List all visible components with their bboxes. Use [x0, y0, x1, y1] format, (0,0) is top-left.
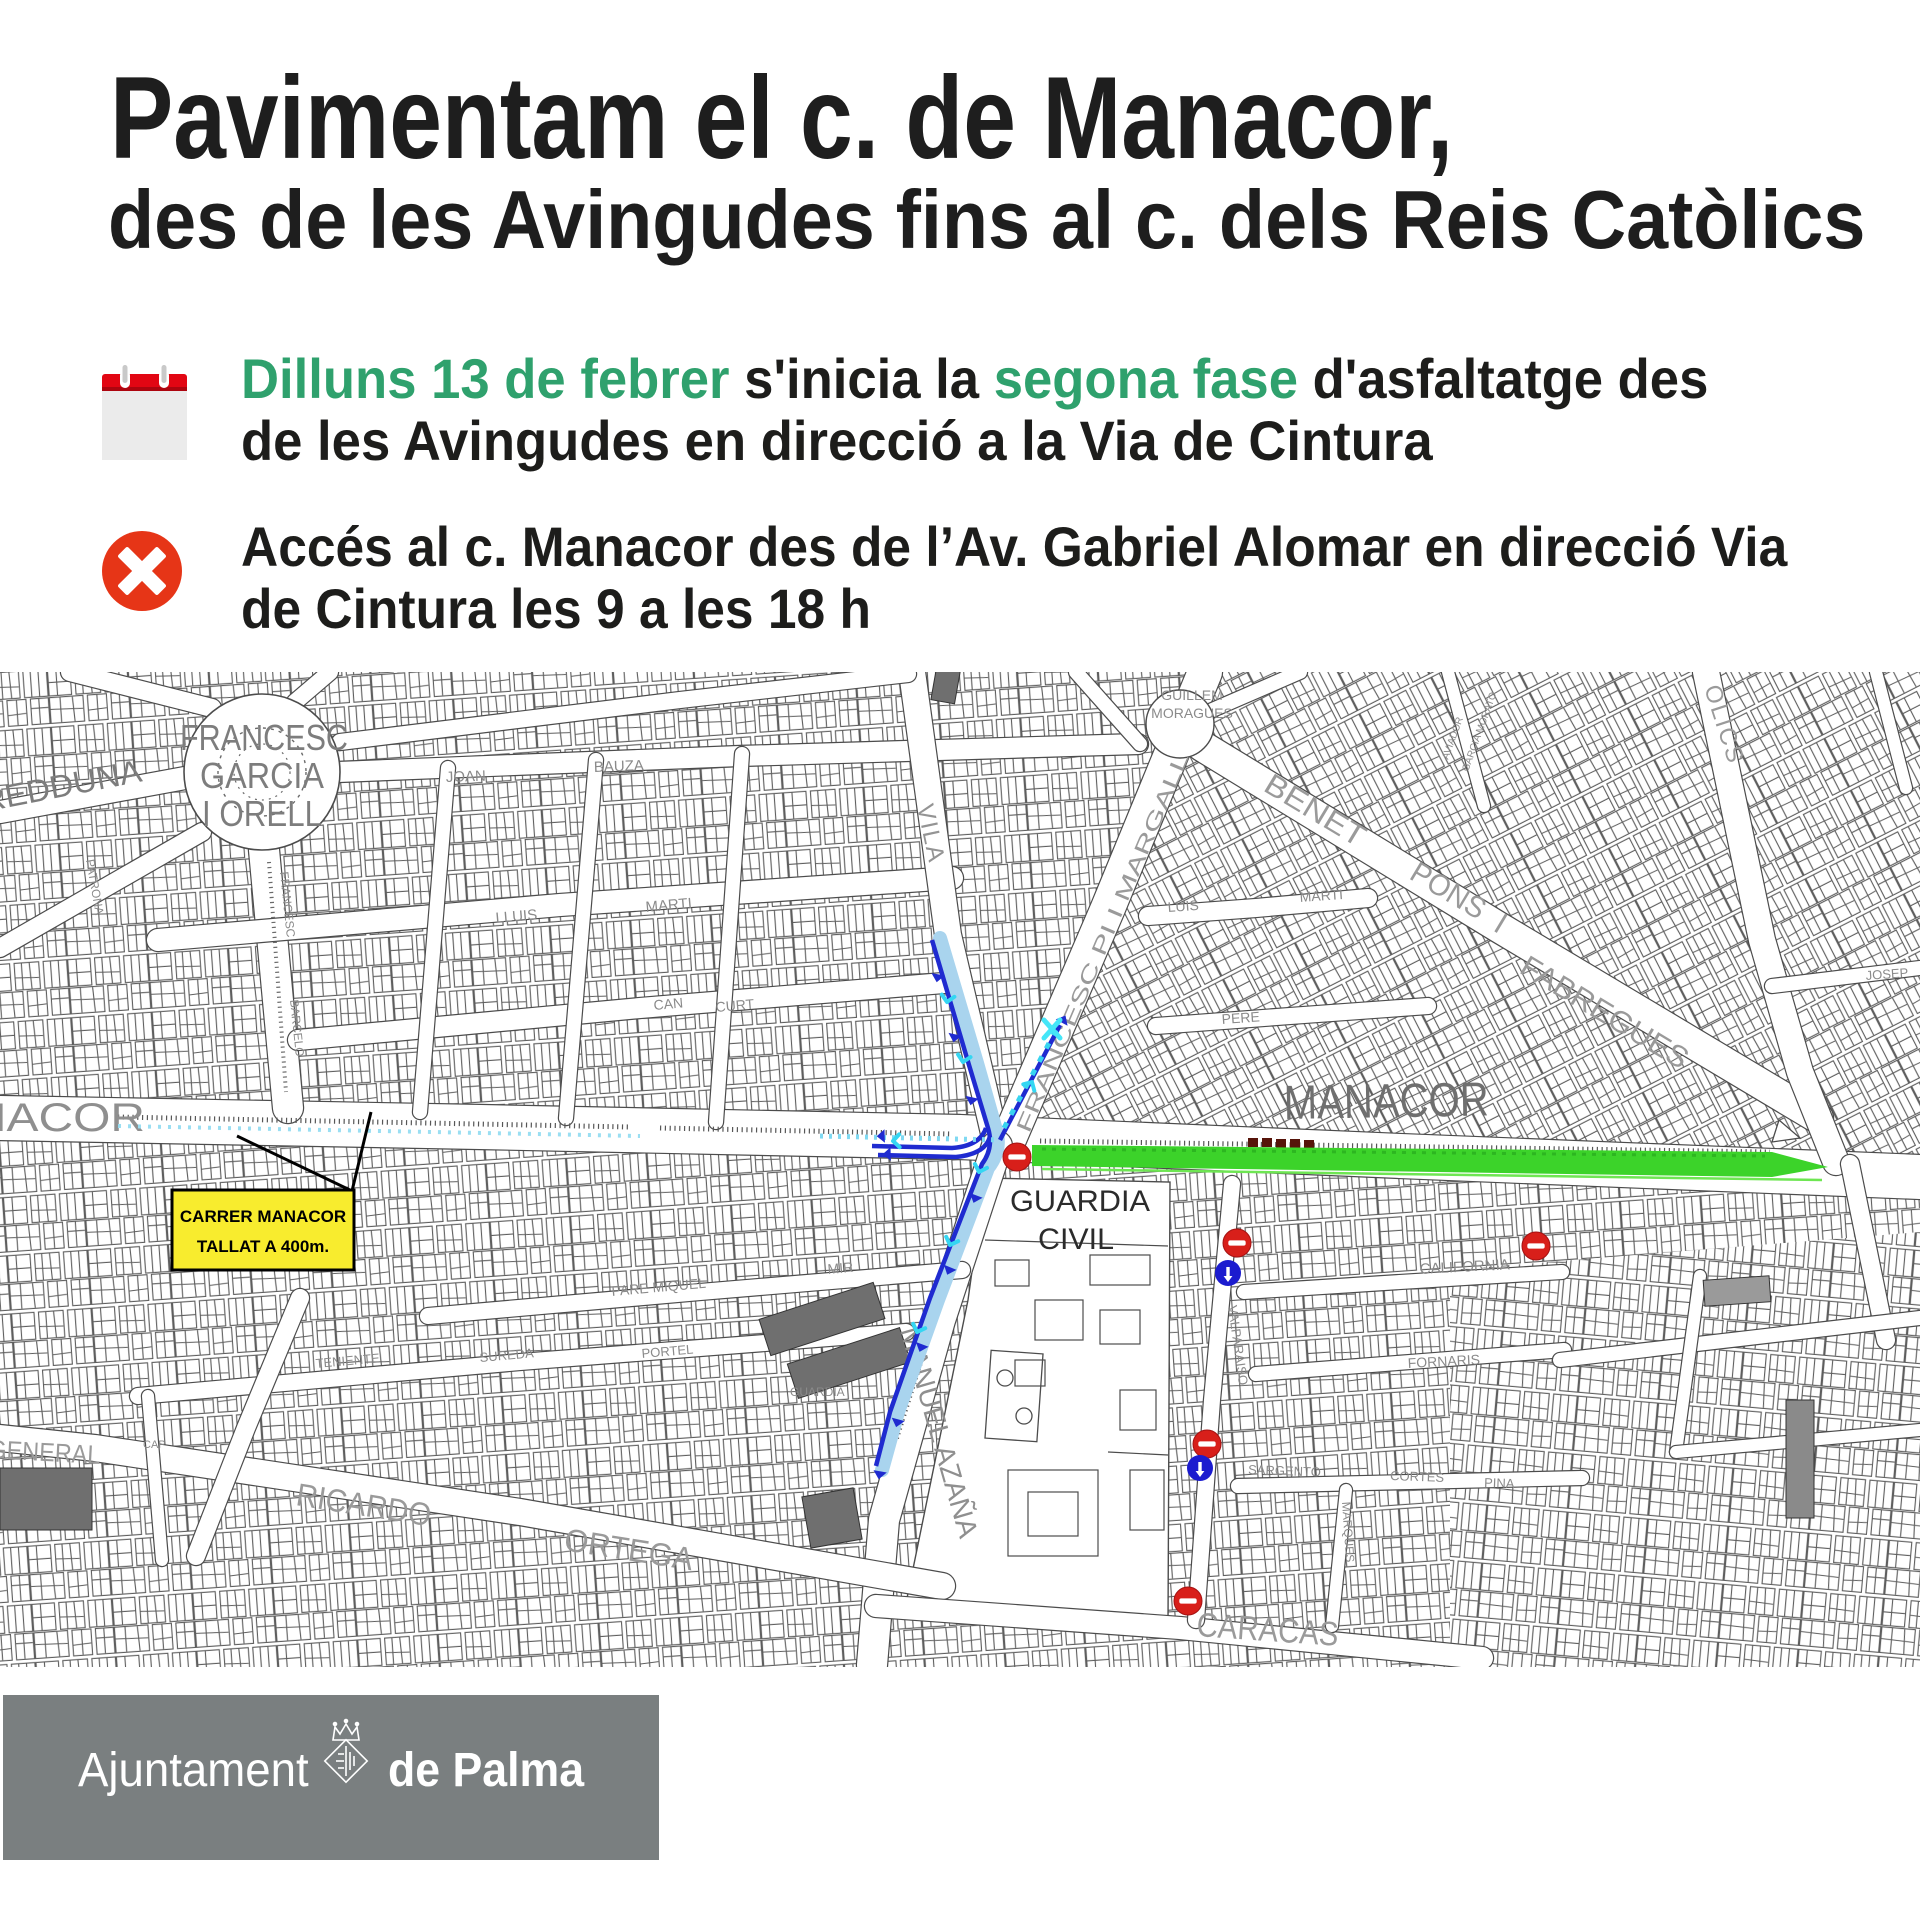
svg-text:MORAGUES: MORAGUES: [1151, 705, 1233, 721]
svg-text:BAUZA: BAUZA: [594, 757, 645, 776]
svg-text:JOSEP: JOSEP: [1865, 965, 1909, 983]
svg-text:LUIS: LUIS: [1167, 897, 1199, 915]
svg-text:CORTES: CORTES: [1390, 1468, 1445, 1485]
svg-text:CAN: CAN: [653, 994, 684, 1013]
svg-text:JOAN: JOAN: [446, 768, 487, 786]
svg-text:CURT: CURT: [715, 996, 755, 1015]
svg-text:MANACOR: MANACOR: [1283, 1073, 1489, 1130]
svg-text:GUARDIA: GUARDIA: [790, 1385, 845, 1399]
svg-text:GUARDIA: GUARDIA: [1010, 1185, 1150, 1218]
svg-text:GARCIA: GARCIA: [200, 755, 324, 796]
svg-text:LLUIS: LLUIS: [495, 906, 538, 927]
svg-text:MANACOR: MANACOR: [0, 1096, 145, 1140]
svg-text:I ORELL: I ORELL: [202, 793, 322, 834]
svg-text:MARTI: MARTI: [1299, 886, 1343, 905]
svg-text:GENERAL: GENERAL: [0, 1434, 101, 1470]
svg-text:MIR: MIR: [827, 1259, 854, 1277]
svg-text:PERE: PERE: [1221, 1008, 1260, 1027]
svg-text:CIVIL: CIVIL: [1038, 1223, 1114, 1256]
svg-text:TALLAT A 400m.: TALLAT A 400m.: [197, 1237, 329, 1256]
svg-text:PINA: PINA: [1484, 1475, 1515, 1491]
svg-text:CARRER MANACOR: CARRER MANACOR: [180, 1207, 346, 1226]
svg-text:SARGENTO: SARGENTO: [1248, 1462, 1321, 1480]
svg-text:FRANCESC: FRANCESC: [180, 717, 348, 758]
svg-text:GUILLEM: GUILLEM: [1161, 687, 1222, 703]
svg-text:CAP: CAP: [143, 1439, 166, 1451]
